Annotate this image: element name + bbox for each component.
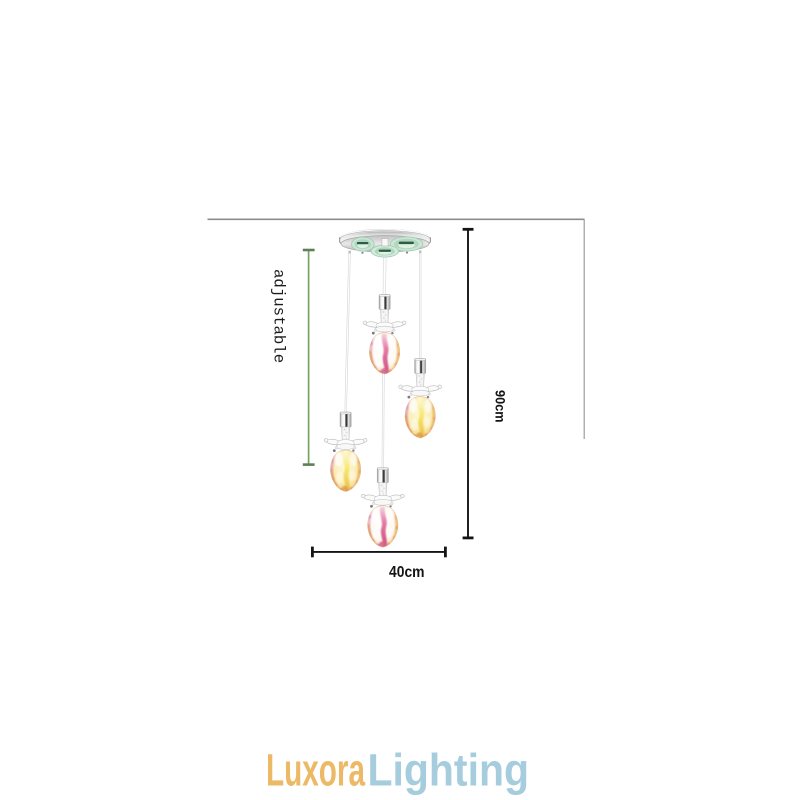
svg-text:adjustable: adjustable — [270, 269, 288, 363]
svg-text:LuxoraLighting: LuxoraLighting — [266, 745, 529, 796]
svg-text:40cm: 40cm — [389, 564, 425, 581]
svg-text:90cm: 90cm — [492, 390, 507, 423]
